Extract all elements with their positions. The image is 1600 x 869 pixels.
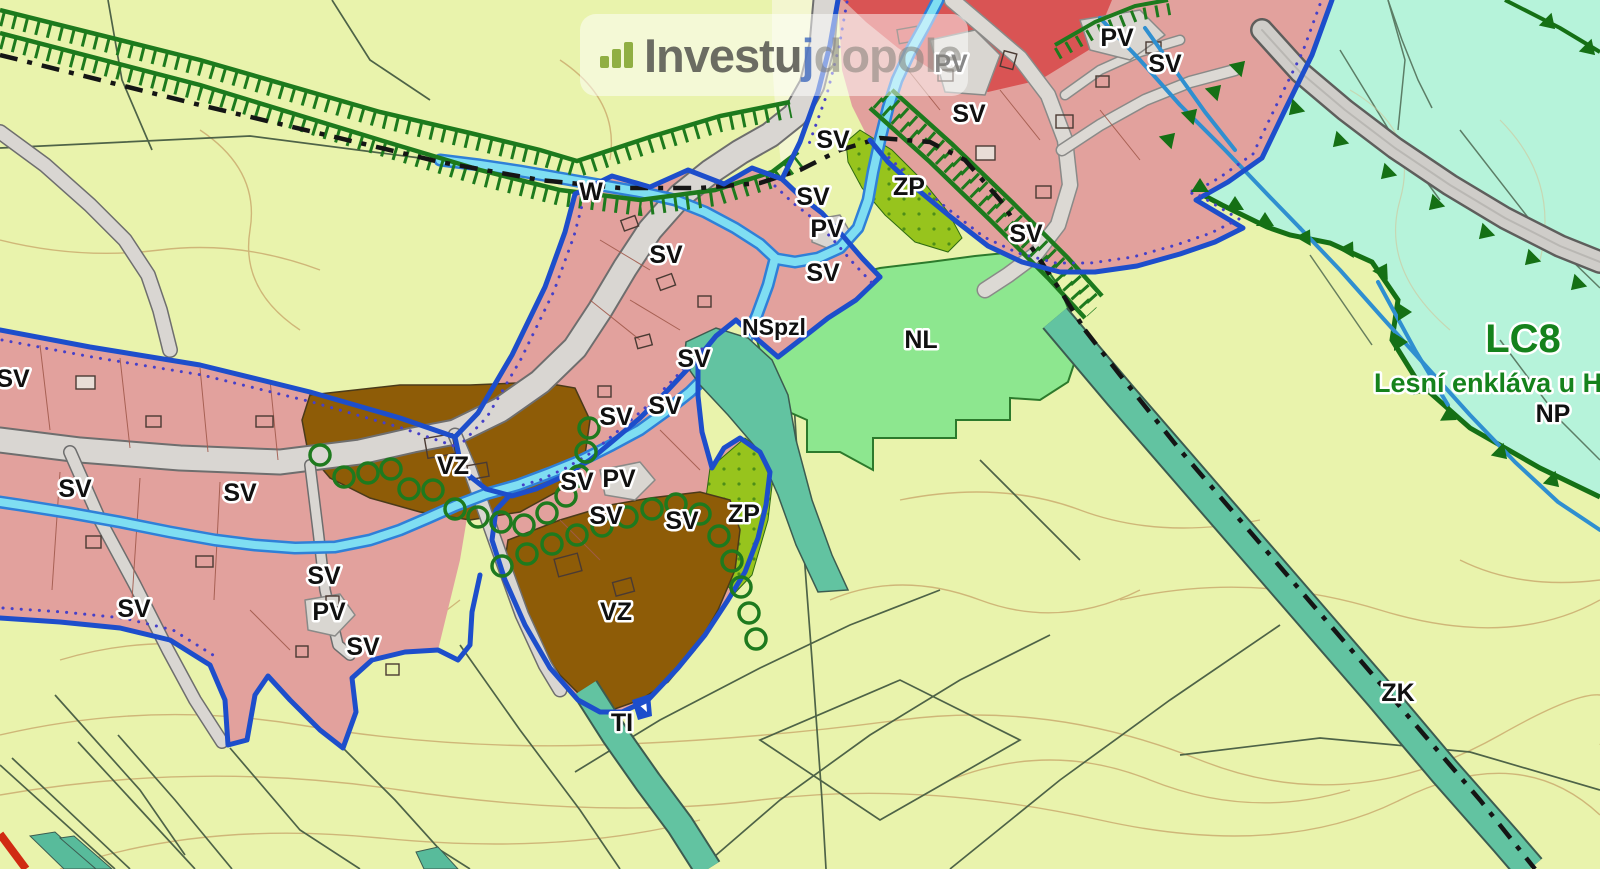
zone-label-SV: SV [816, 126, 850, 154]
zone-label-SV: SV [665, 507, 699, 535]
zone-label-PV: PV [1100, 24, 1134, 52]
zone-label-SV: SV [117, 595, 151, 623]
zone-label-SV: SV [346, 633, 380, 661]
zone-label-NP: NP [1536, 400, 1571, 428]
zone-label-SV: SV [58, 475, 92, 503]
zone-label-SV: SV [560, 468, 594, 496]
zone-label-Lesní-enkláva-u-Heř: Lesní enkláva u Heř [1374, 368, 1600, 398]
zone-label-ZK: ZK [1381, 679, 1414, 707]
zone-label-SV: SV [0, 365, 30, 393]
zone-label-ZP: ZP [893, 173, 925, 201]
zone-label-SV: SV [223, 479, 257, 507]
zone-label-SV: SV [599, 403, 633, 431]
brand-text-prefix: Investu [644, 29, 802, 82]
zone-label-SV: SV [307, 562, 341, 590]
zone-label-SV: SV [952, 100, 986, 128]
zone-label-VZ: VZ [600, 598, 632, 626]
zone-label-NL: NL [904, 326, 937, 354]
zone-label-TI: TI [611, 709, 633, 737]
brand-text-j: j [802, 29, 814, 82]
zone-label-VZ: VZ [437, 452, 469, 480]
zone-label-SV: SV [677, 345, 711, 373]
brand-wordmark: Investujdopole [644, 32, 962, 79]
zoning-map-viewport: WSVPVSVPVSVZPSVSVPVSVSVNSpzlNLSVSVSVSVSV… [0, 0, 1600, 869]
zone-label-W: W [579, 178, 603, 206]
zone-label-NSpzl: NSpzl [742, 314, 806, 340]
zone-label-SV: SV [589, 502, 623, 530]
zone-label-SV: SV [796, 183, 830, 211]
zone-label-LC8: LC8 [1485, 317, 1561, 361]
zone-label-SV: SV [649, 241, 683, 269]
zone-label-SV: SV [1009, 220, 1043, 248]
watermark: Investujdopole [580, 14, 968, 96]
zone-label-SV: SV [806, 259, 840, 287]
map-canvas[interactable]: WSVPVSVPVSVZPSVSVPVSVSVNSpzlNLSVSVSVSVSV… [0, 0, 1600, 869]
zone-label-PV: PV [312, 598, 346, 626]
zone-label-PV: PV [810, 215, 844, 243]
zone-label-SV: SV [1148, 50, 1182, 78]
brand-text-suffix: dopole [814, 29, 962, 82]
zone-label-ZP: ZP [728, 500, 760, 528]
brand-bars-icon [600, 42, 636, 68]
zone-label-SV: SV [648, 392, 682, 420]
zone-label-PV: PV [602, 465, 636, 493]
